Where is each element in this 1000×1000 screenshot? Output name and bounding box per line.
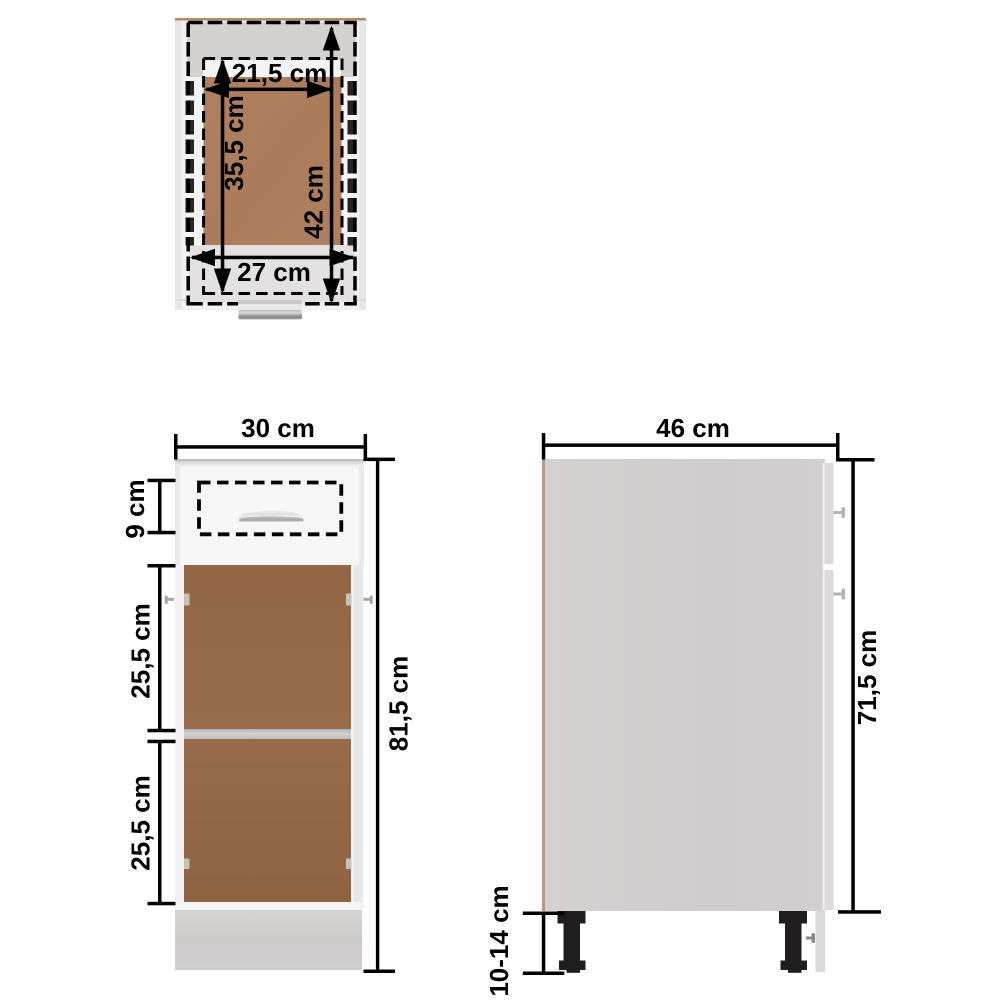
svg-text:25,5 cm: 25,5 cm <box>126 775 156 870</box>
svg-text:46 cm: 46 cm <box>656 413 730 443</box>
svg-text:10-14 cm: 10-14 cm <box>484 885 514 996</box>
svg-text:25,5 cm: 25,5 cm <box>126 603 156 698</box>
svg-text:42 cm: 42 cm <box>299 165 329 239</box>
svg-text:81,5 cm: 81,5 cm <box>384 656 414 751</box>
svg-text:30 cm: 30 cm <box>241 413 315 443</box>
svg-text:27 cm: 27 cm <box>237 257 311 287</box>
svg-text:21,5 cm: 21,5 cm <box>232 58 327 88</box>
svg-text:71,5 cm: 71,5 cm <box>852 630 882 725</box>
svg-text:9 cm: 9 cm <box>120 479 150 538</box>
svg-text:35,5 cm: 35,5 cm <box>219 95 249 190</box>
